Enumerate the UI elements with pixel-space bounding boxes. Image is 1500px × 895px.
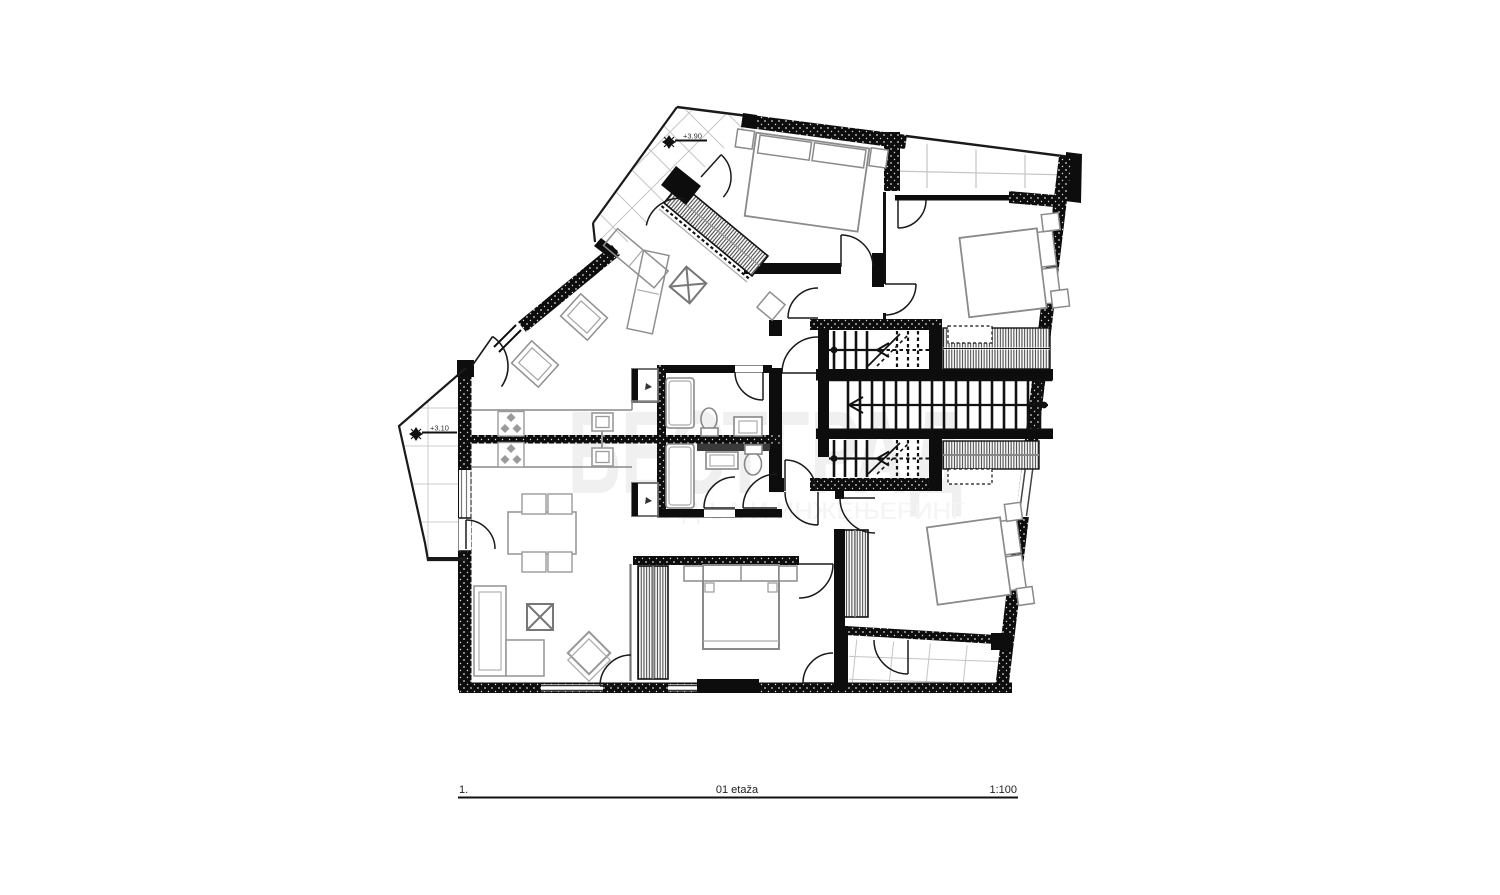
svg-text:1.: 1. [459,784,468,796]
svg-text:1:100: 1:100 [989,784,1017,796]
svg-text:+3.10: +3.10 [430,424,449,433]
svg-text:+3.90: +3.90 [683,132,702,141]
svg-text:01 etaža: 01 etaža [716,784,759,796]
